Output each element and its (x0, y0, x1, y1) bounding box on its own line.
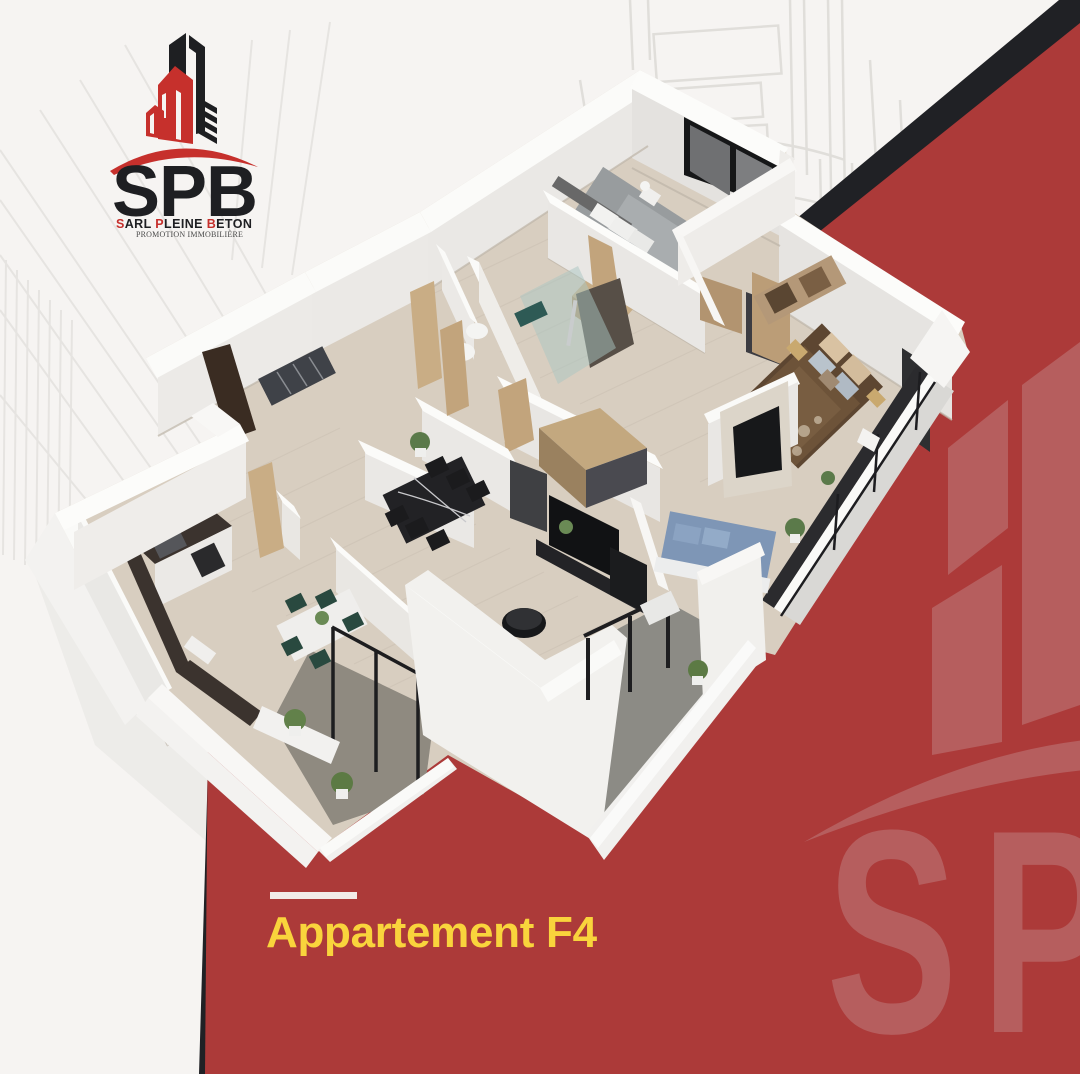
svg-text:SARL PLEINE BETON: SARL PLEINE BETON (116, 217, 252, 231)
svg-text:PROMOTION IMMOBILIÈRE: PROMOTION IMMOBILIÈRE (136, 229, 243, 239)
svg-text:Appartement F4: Appartement F4 (266, 908, 598, 957)
